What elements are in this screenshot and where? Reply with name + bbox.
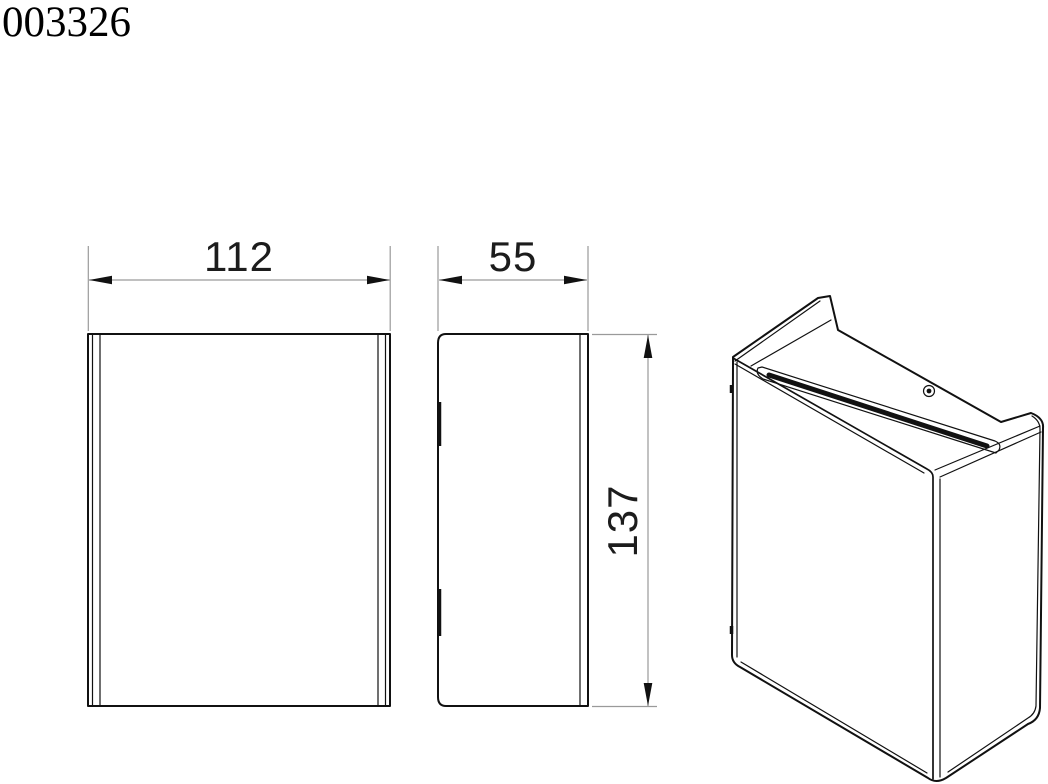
width-arrow-left — [89, 276, 112, 285]
height-arrow-top — [644, 335, 653, 358]
height-arrow-bottom — [644, 683, 653, 706]
part-number: 003326 — [2, 0, 131, 46]
width-arrow-right — [367, 276, 390, 285]
isometric-view — [732, 296, 1044, 781]
iso-bottom-fold-inner — [741, 662, 927, 773]
side-view-outline — [438, 334, 588, 706]
iso-light-slot — [769, 375, 987, 446]
height-dimension: 137 — [592, 335, 657, 707]
iso-flange-thickness-line — [735, 301, 820, 361]
front-view — [88, 334, 390, 706]
width-dimension: 112 — [88, 233, 390, 331]
width-dimension-label: 112 — [204, 233, 274, 280]
iso-flange-base-line — [751, 320, 831, 366]
front-view-outline — [88, 334, 390, 706]
side-view — [438, 334, 588, 706]
height-dimension-label: 137 — [599, 484, 646, 557]
drawing-svg: 003326 112 — [0, 0, 1048, 784]
iso-outline — [732, 296, 1043, 781]
depth-dimension-label: 55 — [489, 233, 538, 280]
depth-arrow-right — [564, 276, 587, 285]
iso-top-right-fold-inner — [940, 432, 1041, 477]
iso-right-face-inner — [948, 416, 1040, 772]
depth-dimension: 55 — [438, 233, 588, 331]
depth-arrow-left — [439, 276, 462, 285]
technical-drawing-sheet: 003326 112 — [0, 0, 1048, 784]
screw-center-dot — [927, 389, 932, 394]
